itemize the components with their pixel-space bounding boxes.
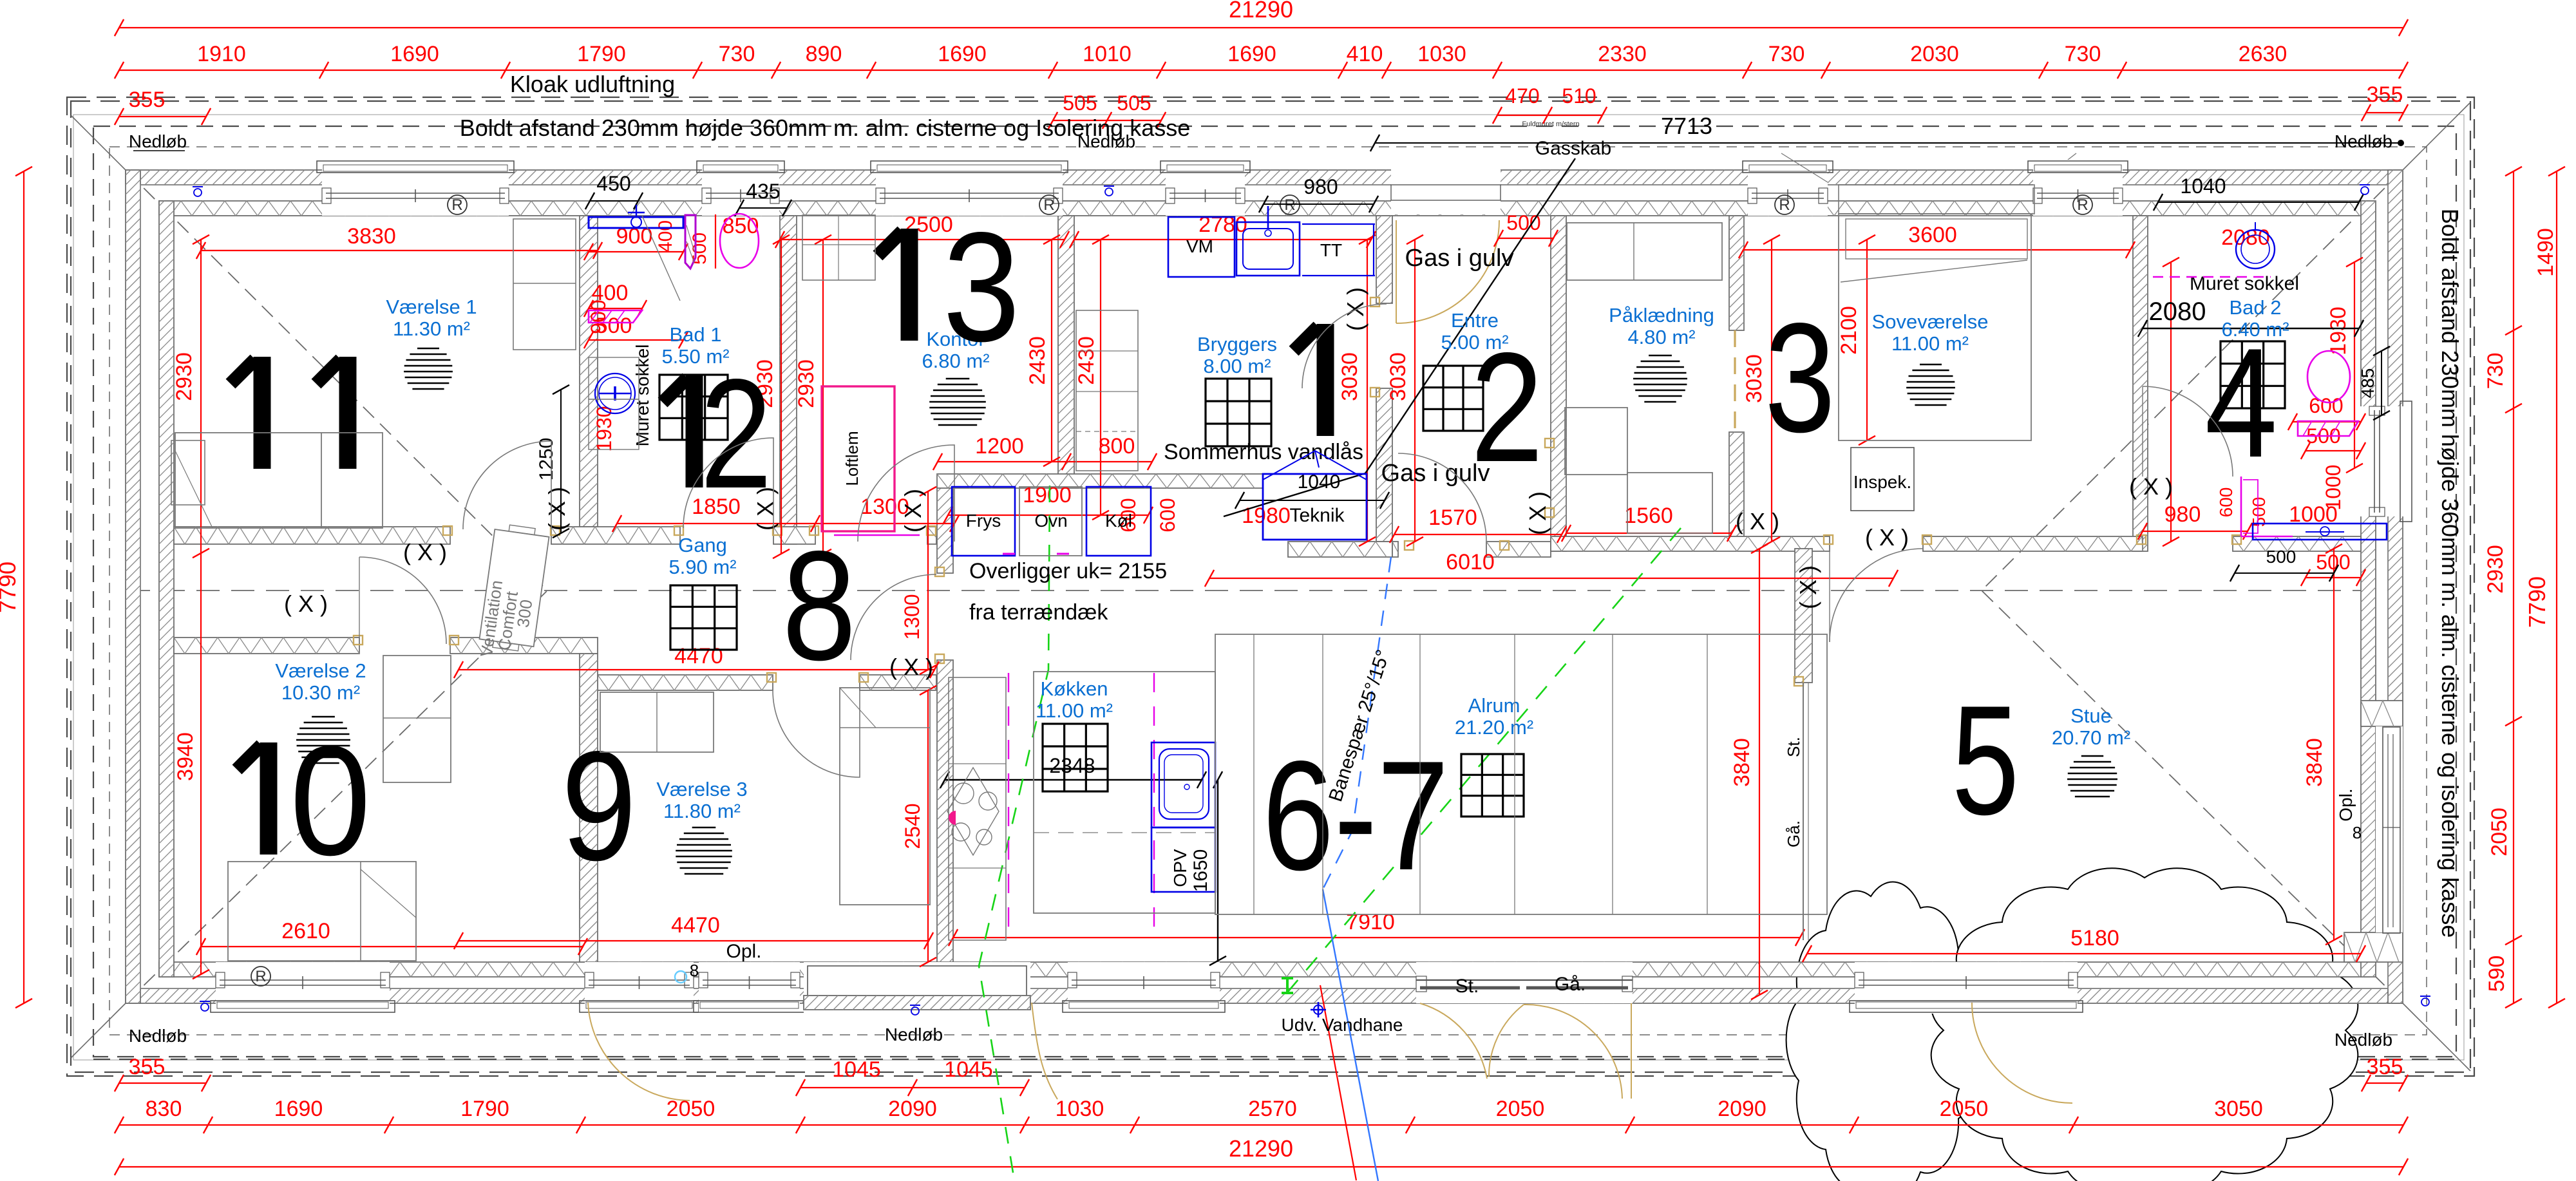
svg-text:R: R xyxy=(1284,196,1295,214)
svg-text:1690: 1690 xyxy=(938,42,987,66)
svg-text:500: 500 xyxy=(2249,497,2269,527)
svg-text:8: 8 xyxy=(690,961,699,980)
svg-text:7713: 7713 xyxy=(1661,113,1712,139)
svg-text:3830: 3830 xyxy=(347,224,396,249)
svg-text:300: 300 xyxy=(513,598,536,628)
svg-text:OPV: OPV xyxy=(1170,849,1190,887)
svg-text:8.00 m²: 8.00 m² xyxy=(1203,355,1271,377)
svg-text:1690: 1690 xyxy=(1227,42,1276,66)
svg-text:3030: 3030 xyxy=(1386,352,1410,401)
svg-text:1200: 1200 xyxy=(975,434,1024,458)
svg-text:( X ): ( X ) xyxy=(1865,524,1909,551)
svg-text:2050: 2050 xyxy=(1496,1097,1545,1121)
svg-text:Kloak udluftning: Kloak udluftning xyxy=(510,71,675,97)
svg-text:5.90 m²: 5.90 m² xyxy=(668,556,736,578)
svg-text:20.70 m²: 20.70 m² xyxy=(2052,726,2130,749)
svg-text:2: 2 xyxy=(700,347,772,521)
svg-text:Gå.: Gå. xyxy=(1784,820,1803,847)
svg-text:1910: 1910 xyxy=(197,42,246,66)
svg-text:TT: TT xyxy=(1320,240,1342,260)
svg-text:400: 400 xyxy=(655,220,676,252)
svg-text:St.: St. xyxy=(1455,976,1479,997)
svg-text:600: 600 xyxy=(2216,487,2236,518)
svg-text:1650: 1650 xyxy=(1190,849,1211,893)
svg-text:2330: 2330 xyxy=(1598,42,1647,66)
svg-text:3030: 3030 xyxy=(1338,352,1362,401)
svg-text:730: 730 xyxy=(719,42,755,66)
svg-text:11.30 m²: 11.30 m² xyxy=(393,317,470,340)
svg-text:10.30 m²: 10.30 m² xyxy=(281,681,360,704)
svg-text:355: 355 xyxy=(129,1055,166,1079)
svg-text:1980: 1980 xyxy=(1242,504,1291,528)
svg-text:500: 500 xyxy=(1506,211,1540,234)
svg-text:2090: 2090 xyxy=(1718,1097,1766,1121)
svg-text:980: 980 xyxy=(1303,175,1338,198)
svg-text:Køkken: Køkken xyxy=(1040,677,1108,700)
svg-text:( X ): ( X ) xyxy=(2129,473,2173,500)
svg-text:Påklædning: Påklædning xyxy=(1609,304,1714,326)
svg-text:410: 410 xyxy=(1347,42,1383,66)
svg-text:Loftlem: Loftlem xyxy=(842,431,862,486)
svg-text:850: 850 xyxy=(723,214,759,238)
svg-text:1570: 1570 xyxy=(1428,505,1477,530)
svg-text:2630: 2630 xyxy=(2239,42,2287,66)
svg-text:Gasskab: Gasskab xyxy=(1535,138,1611,159)
svg-text:Værelse 2: Værelse 2 xyxy=(275,659,366,682)
svg-text:Gang: Gang xyxy=(678,534,727,556)
svg-text:Stue: Stue xyxy=(2070,704,2112,727)
svg-text:1045: 1045 xyxy=(944,1057,993,1082)
svg-text:505: 505 xyxy=(1117,91,1151,115)
svg-text:21.20 m²: 21.20 m² xyxy=(1455,716,1533,739)
svg-text:R: R xyxy=(2077,196,2088,214)
svg-text:500: 500 xyxy=(2266,547,2297,567)
svg-text:11.00 m²: 11.00 m² xyxy=(1891,332,1969,355)
svg-text:3840: 3840 xyxy=(1730,738,1754,787)
svg-text:11.00 m²: 11.00 m² xyxy=(1036,699,1113,722)
svg-text:Inspek.: Inspek. xyxy=(1853,472,1911,492)
svg-text:( X ): ( X ) xyxy=(1342,287,1368,331)
svg-text:( X ): ( X ) xyxy=(889,654,933,680)
svg-text:2610: 2610 xyxy=(281,919,330,943)
svg-text:1560: 1560 xyxy=(1624,504,1673,528)
svg-text:Teknik: Teknik xyxy=(1289,505,1345,526)
svg-text:( X ): ( X ) xyxy=(900,489,926,533)
svg-text:Nedløb: Nedløb xyxy=(885,1025,943,1044)
svg-text:11.80 m²: 11.80 m² xyxy=(663,800,741,822)
svg-text:1045: 1045 xyxy=(832,1057,881,1082)
svg-text:6-7: 6-7 xyxy=(1262,729,1449,903)
svg-text:1250: 1250 xyxy=(536,438,557,481)
svg-text:Nedløb: Nedløb xyxy=(1077,131,1135,151)
svg-text:Udv. Vandhane: Udv. Vandhane xyxy=(1282,1015,1403,1035)
svg-text:Nedløb: Nedløb xyxy=(2334,1030,2392,1050)
svg-text:VM: VM xyxy=(1186,236,1213,256)
svg-text:( X ): ( X ) xyxy=(1524,491,1551,535)
svg-text:Soveværelse: Soveværelse xyxy=(1872,310,1989,333)
svg-text:2930: 2930 xyxy=(794,359,819,408)
svg-text:470: 470 xyxy=(1505,84,1539,108)
svg-text:( X ): ( X ) xyxy=(284,590,328,617)
svg-text:500: 500 xyxy=(689,232,710,265)
svg-text:Opl.: Opl. xyxy=(2336,788,2356,821)
svg-text:Nedløb: Nedløb xyxy=(2334,131,2392,151)
svg-text:2: 2 xyxy=(1471,321,1544,495)
svg-text:3050: 3050 xyxy=(2214,1097,2263,1121)
svg-text:730: 730 xyxy=(2065,42,2101,66)
svg-text:2050: 2050 xyxy=(667,1097,715,1121)
svg-text:4: 4 xyxy=(2205,316,2278,490)
svg-text:Værelse 3: Værelse 3 xyxy=(656,778,747,800)
svg-text:1300: 1300 xyxy=(900,594,923,639)
svg-text:600: 600 xyxy=(2309,394,2343,417)
svg-text:( X ): ( X ) xyxy=(403,539,447,565)
svg-text:5: 5 xyxy=(1952,674,2020,847)
svg-text:485: 485 xyxy=(2358,368,2378,399)
svg-text:355: 355 xyxy=(2367,82,2403,107)
svg-text:4.80 m²: 4.80 m² xyxy=(1627,326,1695,348)
svg-text:2100: 2100 xyxy=(1837,306,1861,355)
svg-text:2430: 2430 xyxy=(1074,336,1099,385)
svg-text:730: 730 xyxy=(1768,42,1805,66)
svg-text:fra terrændæk: fra terrændæk xyxy=(969,600,1108,625)
svg-text:Gå.: Gå. xyxy=(1555,974,1586,995)
svg-text:2930: 2930 xyxy=(2483,545,2508,594)
svg-text:1690: 1690 xyxy=(390,42,439,66)
svg-text:1030: 1030 xyxy=(1417,42,1466,66)
svg-text:5180: 5180 xyxy=(2070,926,2119,950)
svg-text:R: R xyxy=(1043,196,1054,214)
svg-text:2930: 2930 xyxy=(172,352,196,401)
svg-text:3030: 3030 xyxy=(1742,354,1766,403)
svg-text:2430: 2430 xyxy=(1025,336,1050,385)
svg-text:21290: 21290 xyxy=(1229,0,1293,23)
svg-text:500: 500 xyxy=(2316,551,2350,574)
svg-text:3600: 3600 xyxy=(1908,223,1957,247)
svg-text:2090: 2090 xyxy=(888,1097,937,1121)
svg-text:3: 3 xyxy=(1765,291,1835,465)
svg-text:505: 505 xyxy=(1063,91,1097,115)
svg-text:( X ): ( X ) xyxy=(544,487,570,531)
svg-text:7790: 7790 xyxy=(2524,576,2550,628)
svg-text:3940: 3940 xyxy=(173,732,198,781)
svg-text:1790: 1790 xyxy=(577,42,626,66)
svg-text:Bad 1: Bad 1 xyxy=(669,323,721,346)
svg-text:400: 400 xyxy=(592,281,629,305)
svg-text:Ovn: Ovn xyxy=(1034,511,1067,531)
svg-text:Nedløb: Nedløb xyxy=(129,1026,187,1046)
svg-text:Værelse 1: Værelse 1 xyxy=(386,296,477,318)
svg-text:7790: 7790 xyxy=(0,562,21,613)
svg-text:3: 3 xyxy=(943,200,1020,374)
svg-text:( X ): ( X ) xyxy=(1736,508,1779,534)
svg-text:Frys: Frys xyxy=(966,511,1001,531)
svg-text:800: 800 xyxy=(1099,434,1135,458)
svg-text:Bad 2: Bad 2 xyxy=(2229,296,2281,319)
svg-text:1690: 1690 xyxy=(274,1097,323,1121)
svg-text:8: 8 xyxy=(782,519,857,693)
svg-text:Nedløb: Nedløb xyxy=(129,131,187,151)
svg-text:8: 8 xyxy=(2353,823,2362,842)
svg-text:2050: 2050 xyxy=(1940,1097,1989,1121)
svg-text:4470: 4470 xyxy=(671,913,720,938)
svg-text:2080: 2080 xyxy=(2149,298,2206,326)
svg-text:Boldt afstand 230mm højde 360m: Boldt afstand 230mm højde 360mm m. alm. … xyxy=(2437,209,2463,938)
svg-text:Opl.: Opl. xyxy=(726,941,761,962)
svg-text:1790: 1790 xyxy=(460,1097,509,1121)
svg-text:510: 510 xyxy=(1562,84,1596,108)
svg-text:R: R xyxy=(451,196,462,214)
svg-text:600: 600 xyxy=(1156,498,1179,532)
svg-text:1930: 1930 xyxy=(2326,307,2351,355)
svg-text:830: 830 xyxy=(146,1097,182,1121)
svg-text:2030: 2030 xyxy=(1910,42,1959,66)
svg-text:435: 435 xyxy=(746,180,780,203)
svg-text:1490: 1490 xyxy=(2533,228,2558,277)
svg-text:Gas i gulv: Gas i gulv xyxy=(1405,245,1514,272)
svg-text:Alrum: Alrum xyxy=(1468,694,1520,717)
svg-text:Overligger uk= 2155: Overligger uk= 2155 xyxy=(969,559,1167,583)
svg-text:3840: 3840 xyxy=(2302,738,2327,787)
svg-text:4470: 4470 xyxy=(674,644,723,668)
svg-text:450: 450 xyxy=(596,172,630,195)
svg-text:500: 500 xyxy=(596,314,632,338)
svg-text:R: R xyxy=(1779,196,1790,214)
svg-text:2570: 2570 xyxy=(1248,1097,1297,1121)
svg-text:2348: 2348 xyxy=(1049,754,1095,777)
svg-text:730: 730 xyxy=(2483,353,2508,390)
svg-text:Fuldmuret m/stern: Fuldmuret m/stern xyxy=(1522,120,1579,128)
svg-text:9: 9 xyxy=(562,719,637,893)
svg-text:1040: 1040 xyxy=(2180,175,2226,198)
svg-text:355: 355 xyxy=(129,88,166,112)
svg-text:R: R xyxy=(255,968,266,985)
svg-text:1010: 1010 xyxy=(1083,42,1132,66)
svg-text:6010: 6010 xyxy=(1446,550,1495,574)
svg-text:Køl: Køl xyxy=(1105,511,1132,531)
svg-text:1030: 1030 xyxy=(1056,1097,1104,1121)
svg-text:2540: 2540 xyxy=(901,803,924,849)
svg-text:( X ): ( X ) xyxy=(1795,565,1821,609)
svg-text:890: 890 xyxy=(806,42,842,66)
svg-text:355: 355 xyxy=(2367,1055,2403,1079)
svg-text:Bryggers: Bryggers xyxy=(1197,333,1277,355)
svg-text:980: 980 xyxy=(2164,502,2201,527)
svg-text:21290: 21290 xyxy=(1229,1135,1293,1162)
svg-text:2050: 2050 xyxy=(2487,808,2512,856)
svg-text:590: 590 xyxy=(2485,956,2509,992)
svg-text:St.: St. xyxy=(1784,737,1803,757)
